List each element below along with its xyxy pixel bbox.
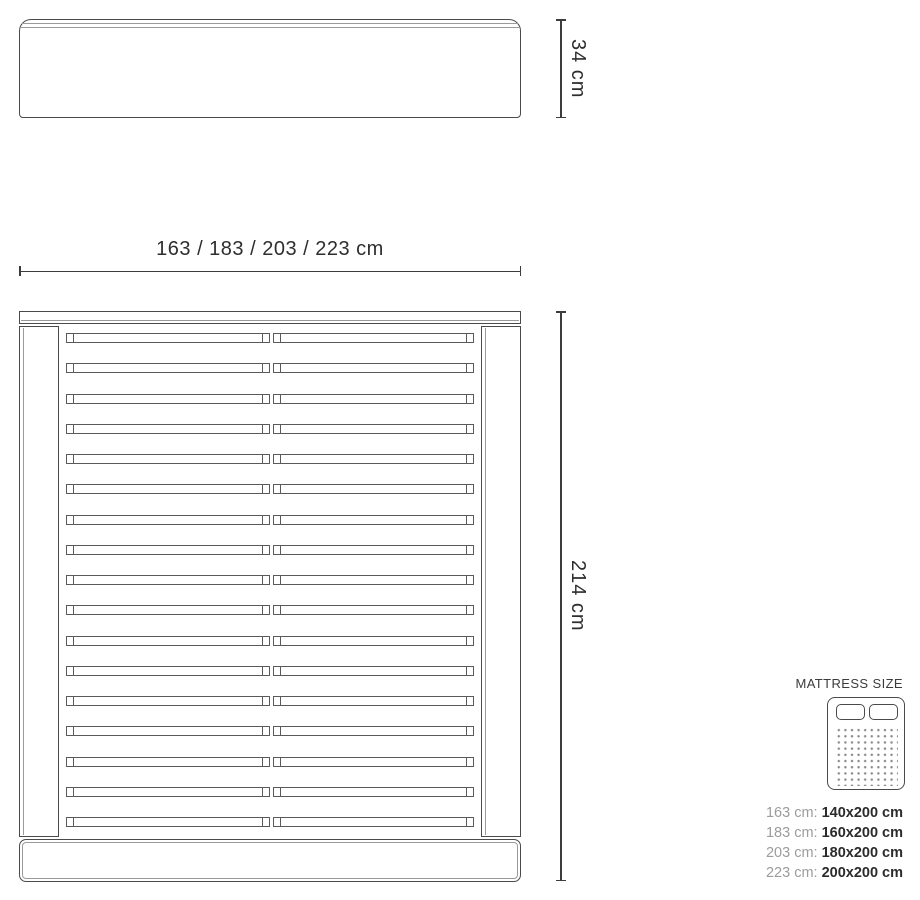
bed-width-dimension-label: 163 / 183 / 203 / 223 cm xyxy=(19,238,521,261)
slat-left-half xyxy=(66,333,270,343)
mattress-size-value: 180x200 cm xyxy=(822,845,903,861)
slat-left-half xyxy=(66,696,270,706)
slat-right-half xyxy=(273,484,474,494)
frame-width-label: 183 cm: xyxy=(766,825,818,841)
bed-frame-left-rail xyxy=(19,326,59,837)
bed-length-dimension-line xyxy=(560,311,562,881)
slat-right-half xyxy=(273,515,474,525)
slat-right-half xyxy=(273,605,474,615)
headboard-side-view xyxy=(19,19,521,118)
slat-right-half xyxy=(273,666,474,676)
mattress-size-list: 163 cm:140x200 cm183 cm:160x200 cm203 cm… xyxy=(766,803,903,883)
slat-left-half xyxy=(66,545,270,555)
slat xyxy=(66,515,474,525)
slat-left-half xyxy=(66,575,270,585)
slat xyxy=(66,333,474,343)
mattress-size-value: 160x200 cm xyxy=(822,825,903,841)
bed-frame-slats xyxy=(66,326,474,837)
headboard-height-dimension-line xyxy=(560,19,562,118)
mattress-quilting-dots xyxy=(834,726,898,786)
slat-left-half xyxy=(66,726,270,736)
headboard-top-bevel-line-2 xyxy=(21,27,519,28)
slat-left-half xyxy=(66,363,270,373)
pillow-left-icon xyxy=(836,704,865,720)
slat-right-half xyxy=(273,726,474,736)
slat xyxy=(66,484,474,494)
frame-width-label: 163 cm: xyxy=(766,805,818,821)
bed-width-dimension-line xyxy=(19,271,521,273)
slat-right-half xyxy=(273,424,474,434)
slat-left-half xyxy=(66,787,270,797)
slat-right-half xyxy=(273,363,474,373)
mattress-size-title: MATTRESS SIZE xyxy=(795,676,903,691)
slat-right-half xyxy=(273,454,474,464)
left-rail-bevel-line xyxy=(23,328,24,835)
slat xyxy=(66,787,474,797)
slat-right-half xyxy=(273,817,474,827)
bed-frame-head-rail xyxy=(19,311,521,324)
slat-left-half xyxy=(66,636,270,646)
bed-frame-right-rail xyxy=(481,326,521,837)
slat-left-half xyxy=(66,515,270,525)
slat-left-half xyxy=(66,424,270,434)
dimension-diagram-sheet: 34 cm 163 / 183 / 203 / 223 cm 214 cm MA… xyxy=(0,0,920,900)
slat-left-half xyxy=(66,817,270,827)
head-rail-bevel-line xyxy=(21,320,519,321)
slat xyxy=(66,817,474,827)
double-mattress-icon xyxy=(827,697,905,790)
slat-right-half xyxy=(273,545,474,555)
pillow-right-icon xyxy=(869,704,898,720)
mattress-size-row: 203 cm:180x200 cm xyxy=(766,843,903,863)
foot-rail-bevel-line xyxy=(22,842,518,879)
bed-frame-foot-rail xyxy=(19,839,521,882)
slat-right-half xyxy=(273,394,474,404)
right-rail-bevel-line xyxy=(485,328,486,835)
slat-right-half xyxy=(273,333,474,343)
slat xyxy=(66,545,474,555)
slat-right-half xyxy=(273,757,474,767)
slat xyxy=(66,757,474,767)
slat-right-half xyxy=(273,636,474,646)
bed-length-dimension-label: 214 cm xyxy=(566,311,589,881)
slat-left-half xyxy=(66,757,270,767)
slat-left-half xyxy=(66,605,270,615)
headboard-top-bevel-line xyxy=(22,23,518,24)
slat-right-half xyxy=(273,696,474,706)
slat xyxy=(66,394,474,404)
headboard-height-dimension-label: 34 cm xyxy=(566,19,589,118)
slat xyxy=(66,636,474,646)
mattress-size-row: 183 cm:160x200 cm xyxy=(766,823,903,843)
slat xyxy=(66,666,474,676)
slat xyxy=(66,454,474,464)
slat-right-half xyxy=(273,787,474,797)
slat xyxy=(66,575,474,585)
slat-right-half xyxy=(273,575,474,585)
mattress-size-row: 223 cm:200x200 cm xyxy=(766,863,903,883)
frame-width-label: 223 cm: xyxy=(766,865,818,881)
slat-left-half xyxy=(66,394,270,404)
frame-width-label: 203 cm: xyxy=(766,845,818,861)
mattress-size-row: 163 cm:140x200 cm xyxy=(766,803,903,823)
slat-left-half xyxy=(66,666,270,676)
slat-left-half xyxy=(66,454,270,464)
slat xyxy=(66,605,474,615)
slat xyxy=(66,363,474,373)
slat xyxy=(66,424,474,434)
slat xyxy=(66,726,474,736)
slat-left-half xyxy=(66,484,270,494)
slat xyxy=(66,696,474,706)
mattress-size-value: 200x200 cm xyxy=(822,865,903,881)
mattress-size-value: 140x200 cm xyxy=(822,805,903,821)
